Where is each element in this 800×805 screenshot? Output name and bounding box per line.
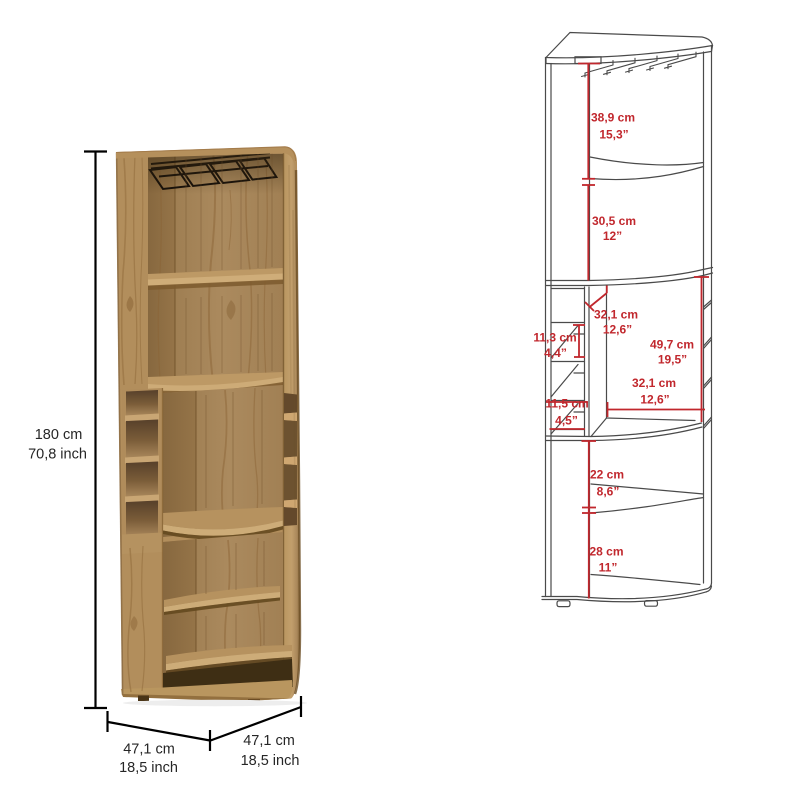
svg-text:18,5 inch: 18,5 inch <box>119 760 178 776</box>
svg-text:47,1 cm: 47,1 cm <box>123 742 175 758</box>
svg-text:22 cm: 22 cm <box>590 468 624 482</box>
svg-text:11,3 cm: 11,3 cm <box>533 331 576 345</box>
svg-text:12,6”: 12,6” <box>603 323 632 337</box>
svg-text:30,5 cm: 30,5 cm <box>592 214 636 228</box>
svg-text:28 cm: 28 cm <box>589 545 623 559</box>
svg-text:8,6”: 8,6” <box>597 485 620 499</box>
svg-text:18,5 inch: 18,5 inch <box>241 753 300 769</box>
svg-text:180 cm: 180 cm <box>35 427 83 443</box>
svg-text:11,5 cm: 11,5 cm <box>545 397 588 411</box>
svg-text:32,1 cm: 32,1 cm <box>632 376 676 390</box>
svg-text:19,5”: 19,5” <box>658 353 687 367</box>
svg-text:38,9 cm: 38,9 cm <box>591 111 635 125</box>
svg-text:11”: 11” <box>599 561 618 575</box>
svg-text:12,6”: 12,6” <box>640 393 669 407</box>
svg-text:47,1 cm: 47,1 cm <box>243 733 295 749</box>
svg-text:32,1 cm: 32,1 cm <box>594 308 638 322</box>
svg-text:4,5”: 4,5” <box>555 414 578 428</box>
svg-text:4,4”: 4,4” <box>544 346 567 360</box>
svg-text:70,8 inch: 70,8 inch <box>28 447 87 463</box>
svg-text:49,7 cm: 49,7 cm <box>650 338 694 352</box>
svg-text:15,3”: 15,3” <box>599 128 628 142</box>
svg-text:12”: 12” <box>603 229 622 243</box>
